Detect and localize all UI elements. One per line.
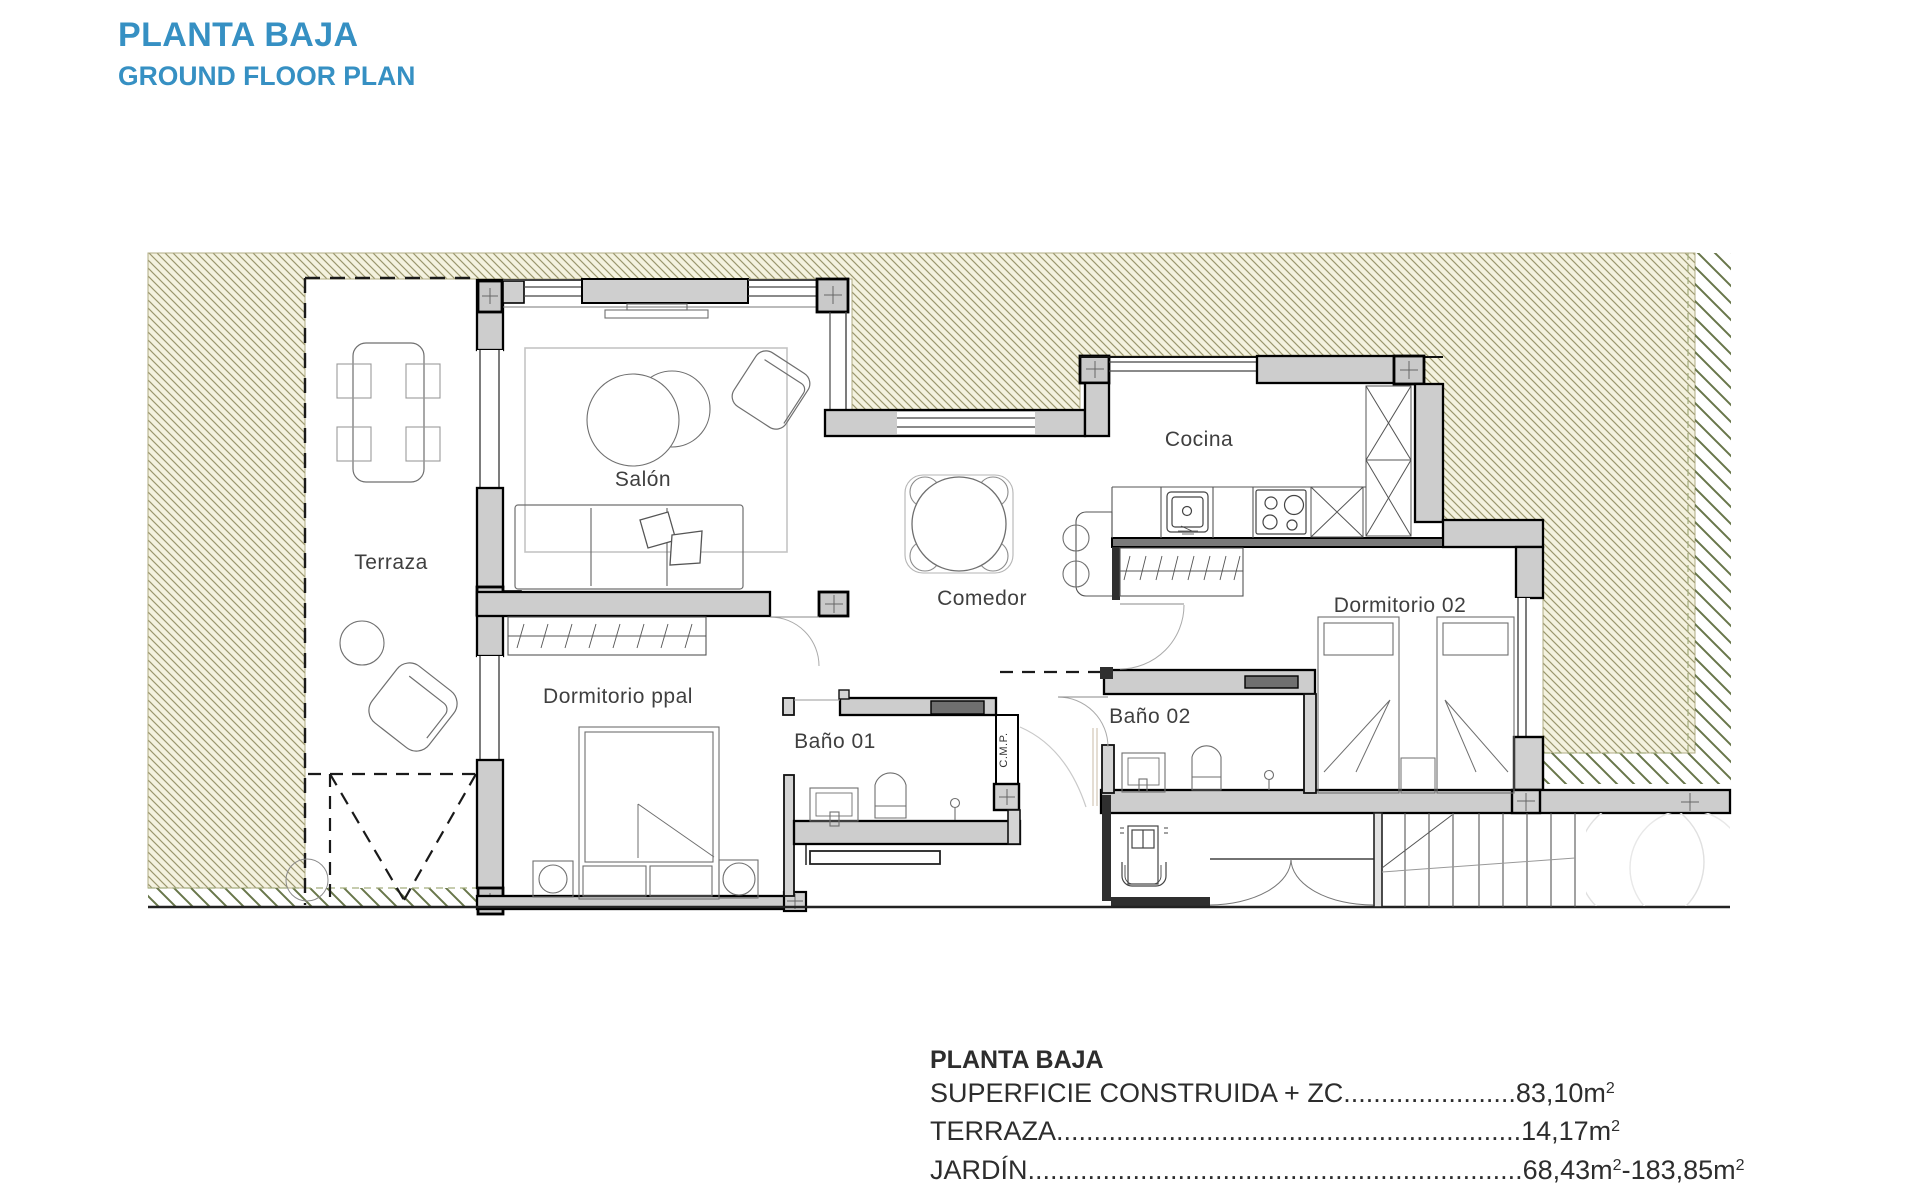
svg-text:C.M.P.: C.M.P.	[998, 732, 1010, 767]
svg-text:GROUND FLOOR PLAN: GROUND FLOOR PLAN	[118, 61, 415, 91]
svg-text:Baño 01: Baño 01	[794, 730, 876, 753]
svg-text:SUPERFICIE CONSTRUIDA + ZC....: SUPERFICIE CONSTRUIDA + ZC..............…	[930, 1078, 1615, 1108]
svg-text:Dormitorio ppal: Dormitorio ppal	[543, 685, 693, 708]
svg-text:Dormitorio 02: Dormitorio 02	[1334, 594, 1467, 617]
svg-text:PLANTA BAJA: PLANTA BAJA	[930, 1046, 1104, 1074]
svg-text:Terraza: Terraza	[354, 551, 428, 574]
svg-text:TERRAZA.......................: TERRAZA.................................…	[930, 1116, 1620, 1146]
svg-text:PLANTA BAJA: PLANTA BAJA	[118, 16, 359, 54]
svg-text:Baño 02: Baño 02	[1109, 705, 1191, 728]
svg-text:Salón: Salón	[615, 468, 671, 491]
svg-text:Cocina: Cocina	[1165, 428, 1233, 451]
svg-text:Comedor: Comedor	[937, 587, 1027, 610]
svg-text:JARDÍN........................: JARDÍN..................................…	[930, 1155, 1745, 1185]
